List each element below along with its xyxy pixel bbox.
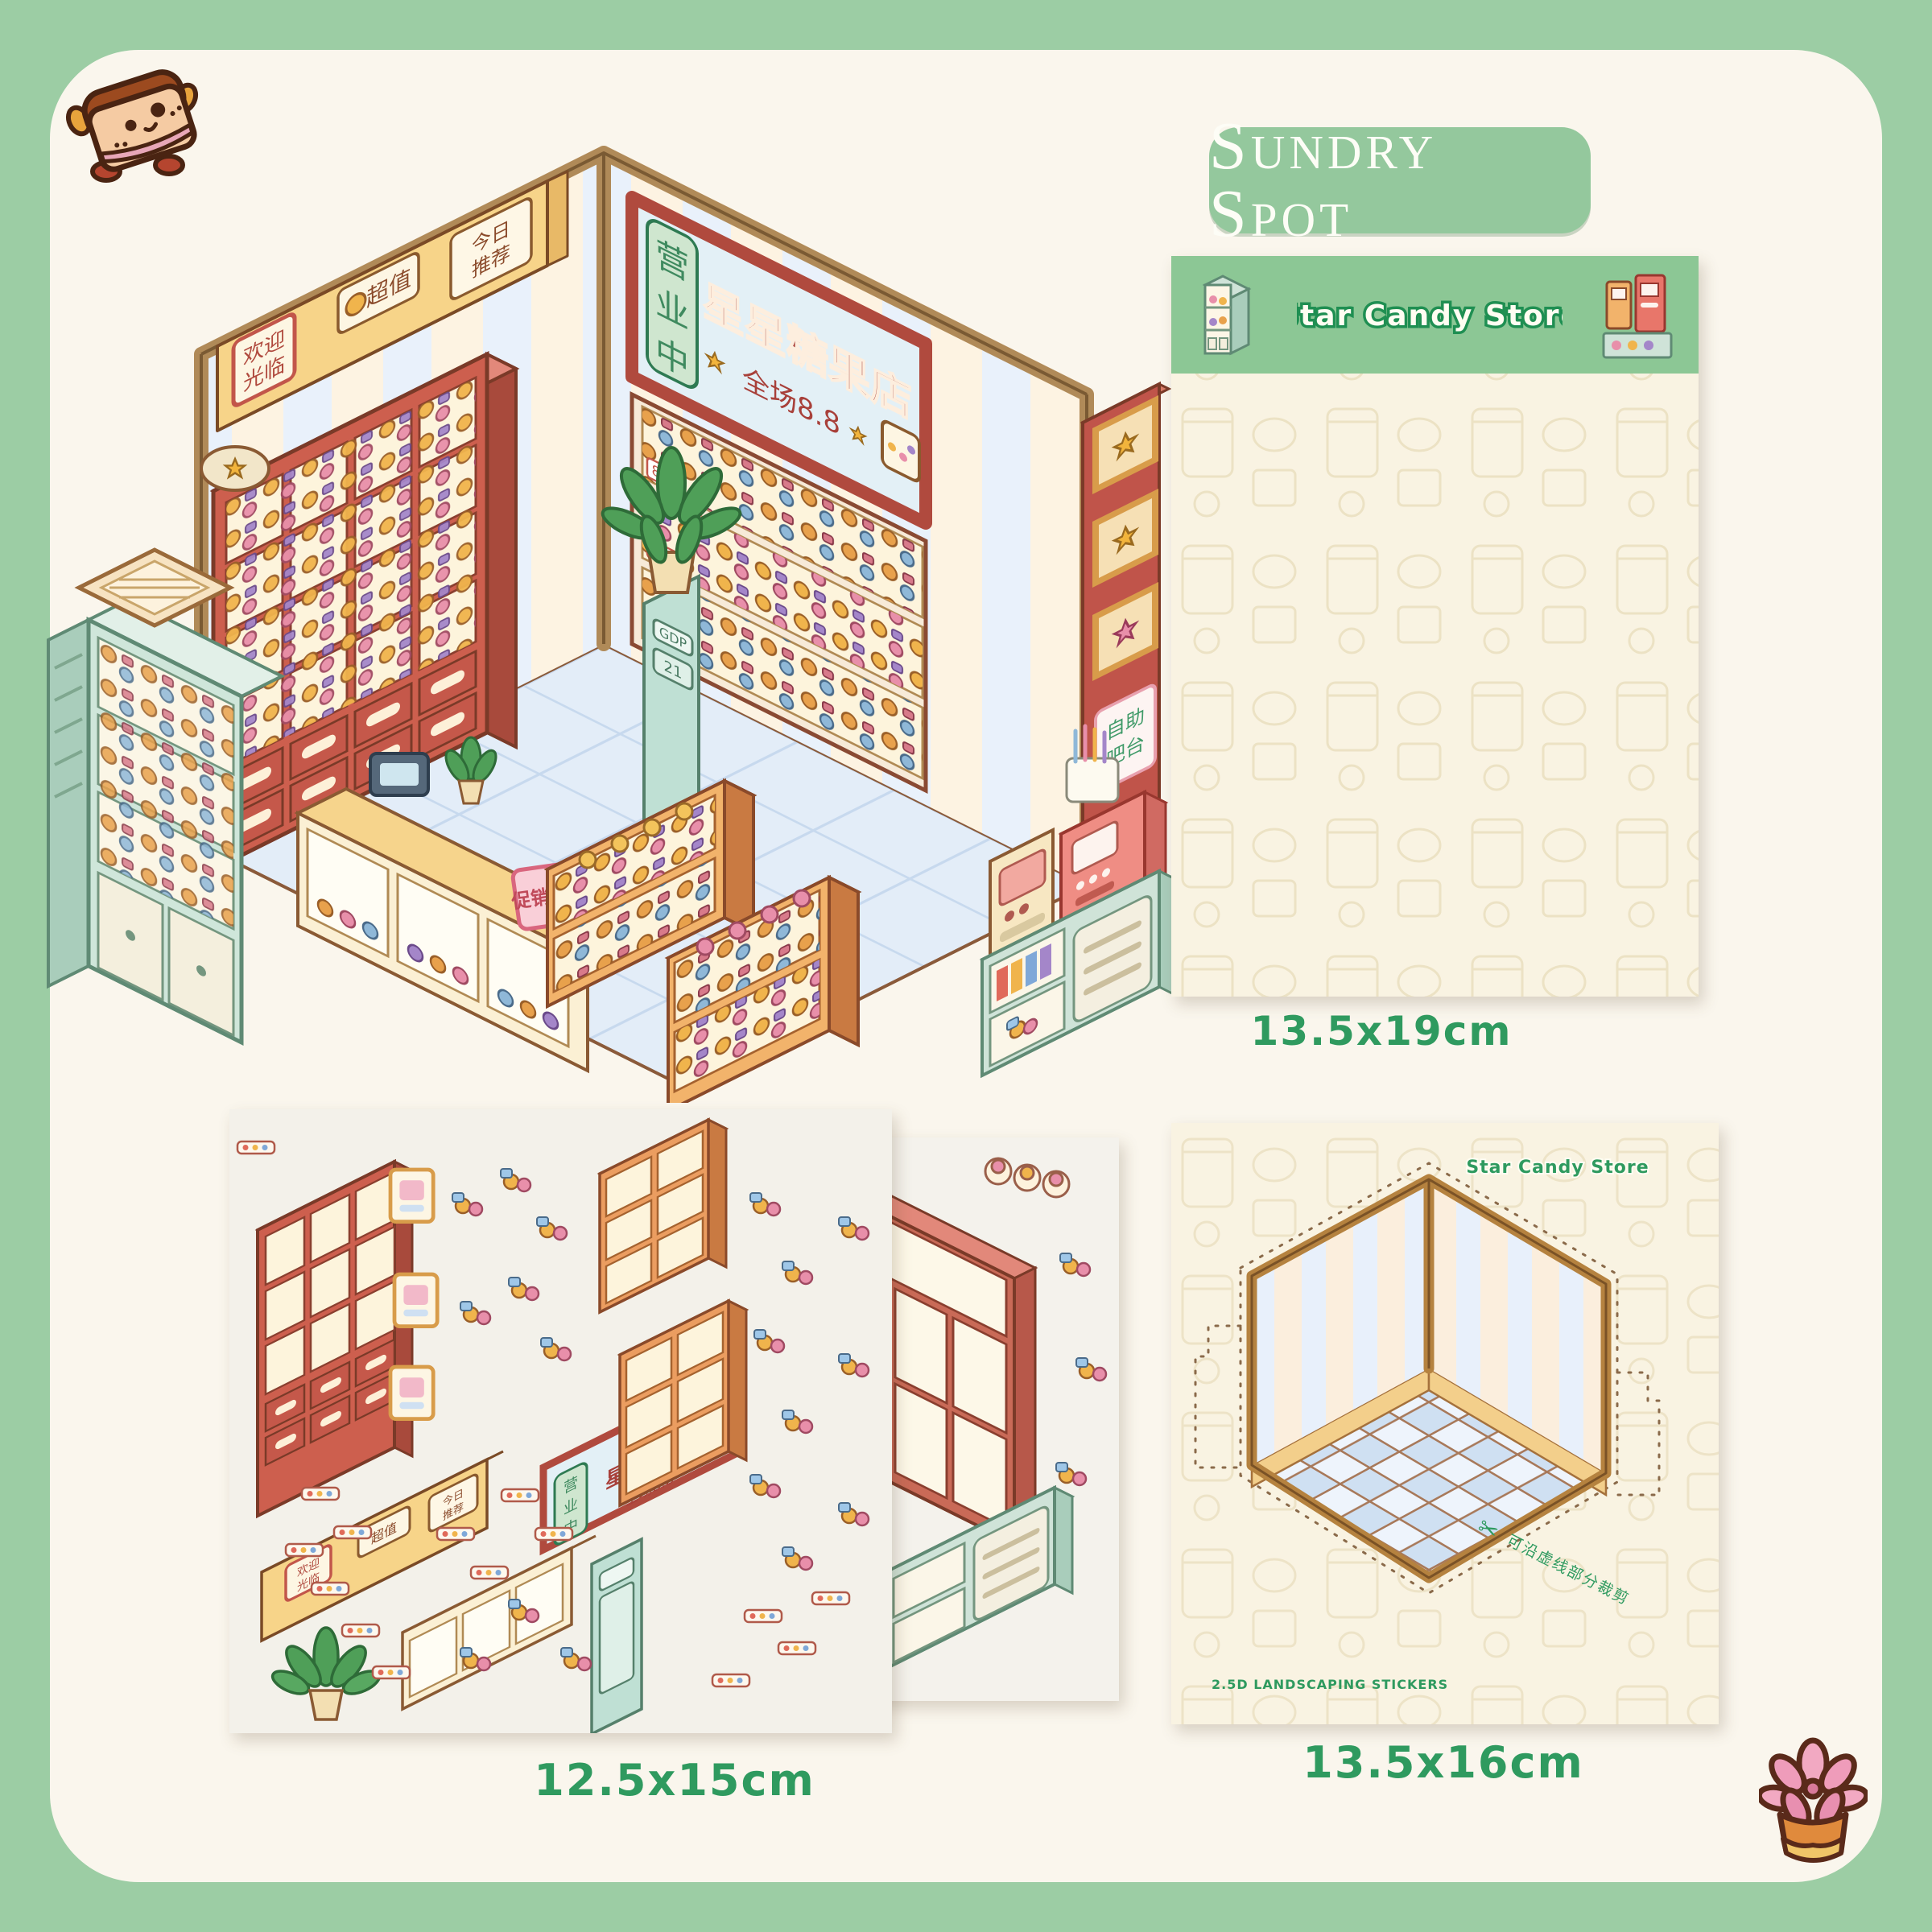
main-store-illustration: 欢迎 光临 超值 今日 推荐 营 业 中 星星糖果店 全场8.8 [32,105,1175,1103]
title-badge: Sundry Spot [1209,127,1591,233]
size-label-pattern-sheet: 13.5x19cm [1251,1008,1513,1055]
orange-shelf-sticker-1 [600,1120,726,1312]
product-image: { "badge": { "title": "Sundry Spot" }, "… [0,0,1932,1932]
vending-machines-icon [1600,267,1674,362]
succulent-pot-icon [1759,1731,1868,1880]
sticker-sheet-pattern: Star Candy Store [1171,256,1699,997]
toast-mascot-icon [63,40,208,189]
pen-holder [1067,758,1118,802]
sticker-sheet-background: Star Candy Store ✂ 可沿虚线部分裁剪 2.5D LANDSCA… [1171,1123,1719,1724]
size-label-background-sheet: 13.5x16cm [1302,1737,1584,1788]
background-sheet-type-label: 2.5D LANDSCAPING STICKERS [1212,1677,1448,1692]
orange-shelf-sticker-2 [620,1301,746,1505]
sheet-pattern-header: Star Candy Store [1171,256,1699,374]
sticker-sheet-elements-front: 欢迎 光临 超值 今日 推荐 [229,1109,892,1733]
plant-sticker [270,1628,383,1719]
size-label-elements-sheet: 12.5x15cm [534,1755,815,1806]
sheet-header-title-text: Star Candy Store [1297,299,1563,332]
shelf-illustration-icon [1195,267,1258,362]
sheet-header-title: Star Candy Store [1297,287,1563,343]
background-sheet-brand: Star Candy Store [1466,1158,1649,1178]
background-sheet-art: Star Candy Store ✂ 可沿虚线部分裁剪 2.5D LANDSCA… [1171,1123,1719,1724]
title-badge-label: Sundry Spot [1209,113,1591,248]
elements-front-stickers: 欢迎 光临 超值 今日 推荐 [229,1109,892,1733]
